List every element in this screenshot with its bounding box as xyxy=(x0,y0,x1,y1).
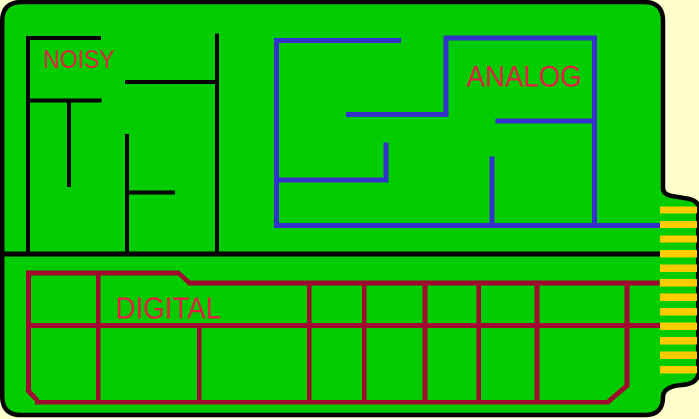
svg-text:NOISY: NOISY xyxy=(43,46,115,74)
svg-text:DIGITAL: DIGITAL xyxy=(116,292,222,326)
svg-text:ANALOG: ANALOG xyxy=(467,60,582,93)
